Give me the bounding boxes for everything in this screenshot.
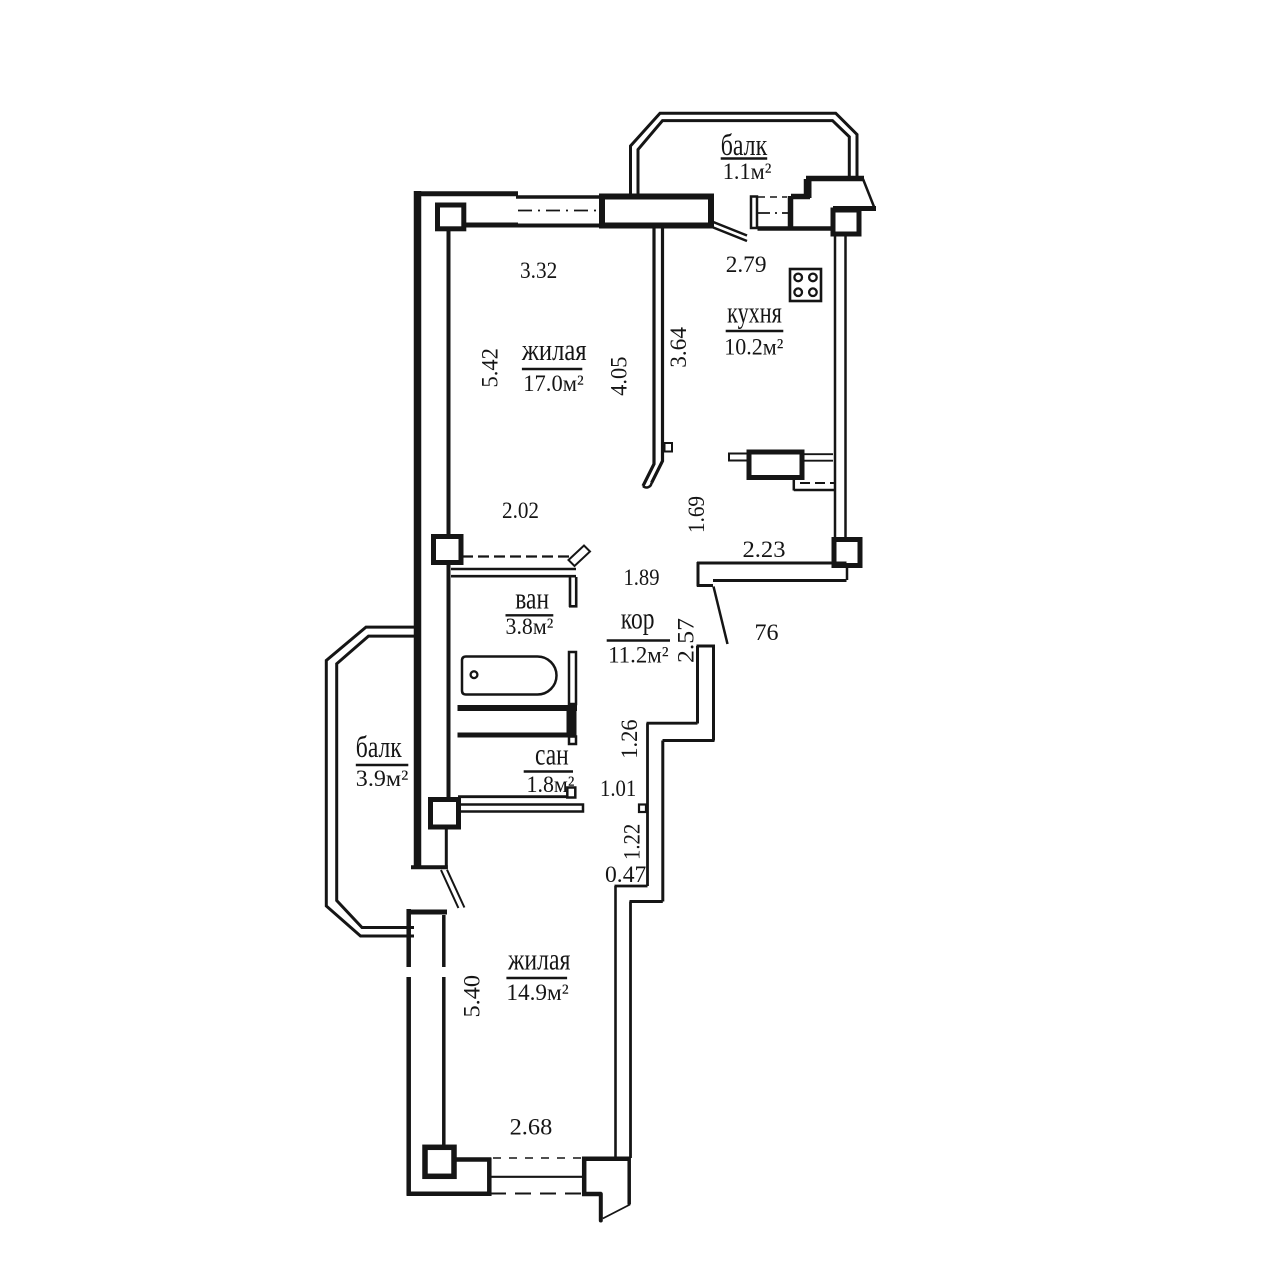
svg-text:балк: балк bbox=[721, 127, 768, 162]
svg-text:2.79: 2.79 bbox=[726, 252, 767, 278]
svg-text:11.2м²: 11.2м² bbox=[608, 643, 669, 669]
svg-text:3.8м²: 3.8м² bbox=[506, 614, 554, 640]
svg-text:2.57: 2.57 bbox=[673, 618, 699, 663]
svg-text:3.64: 3.64 bbox=[666, 327, 692, 368]
svg-text:2.02: 2.02 bbox=[502, 498, 539, 524]
svg-text:жилая: жилая bbox=[507, 942, 570, 977]
svg-text:2.23: 2.23 bbox=[743, 537, 786, 563]
svg-text:кор: кор bbox=[621, 601, 655, 636]
svg-text:1.69: 1.69 bbox=[684, 496, 710, 533]
svg-text:ван: ван bbox=[515, 581, 549, 616]
svg-text:1.89: 1.89 bbox=[624, 565, 660, 591]
svg-text:1.8м²: 1.8м² bbox=[527, 772, 575, 798]
svg-text:14.9м²: 14.9м² bbox=[506, 980, 568, 1006]
svg-text:сан: сан bbox=[535, 737, 569, 772]
svg-text:10.2м²: 10.2м² bbox=[724, 335, 783, 361]
svg-text:кухня: кухня bbox=[727, 295, 782, 330]
svg-text:3.32: 3.32 bbox=[520, 258, 557, 284]
svg-text:4.05: 4.05 bbox=[607, 357, 633, 396]
svg-text:5.42: 5.42 bbox=[477, 348, 503, 387]
svg-text:0.47: 0.47 bbox=[605, 862, 647, 888]
svg-text:76: 76 bbox=[755, 620, 779, 646]
svg-text:1.1м²: 1.1м² bbox=[723, 159, 772, 185]
svg-text:балк: балк bbox=[356, 729, 403, 764]
svg-text:1.26: 1.26 bbox=[617, 719, 643, 759]
svg-text:3.9м²: 3.9м² bbox=[356, 766, 409, 792]
svg-text:2.68: 2.68 bbox=[510, 1115, 553, 1141]
svg-text:5.40: 5.40 bbox=[460, 975, 486, 1018]
svg-text:17.0м²: 17.0м² bbox=[523, 371, 583, 397]
svg-text:1.22: 1.22 bbox=[619, 824, 645, 860]
svg-text:1.01: 1.01 bbox=[600, 776, 636, 802]
svg-text:жилая: жилая bbox=[521, 332, 586, 367]
